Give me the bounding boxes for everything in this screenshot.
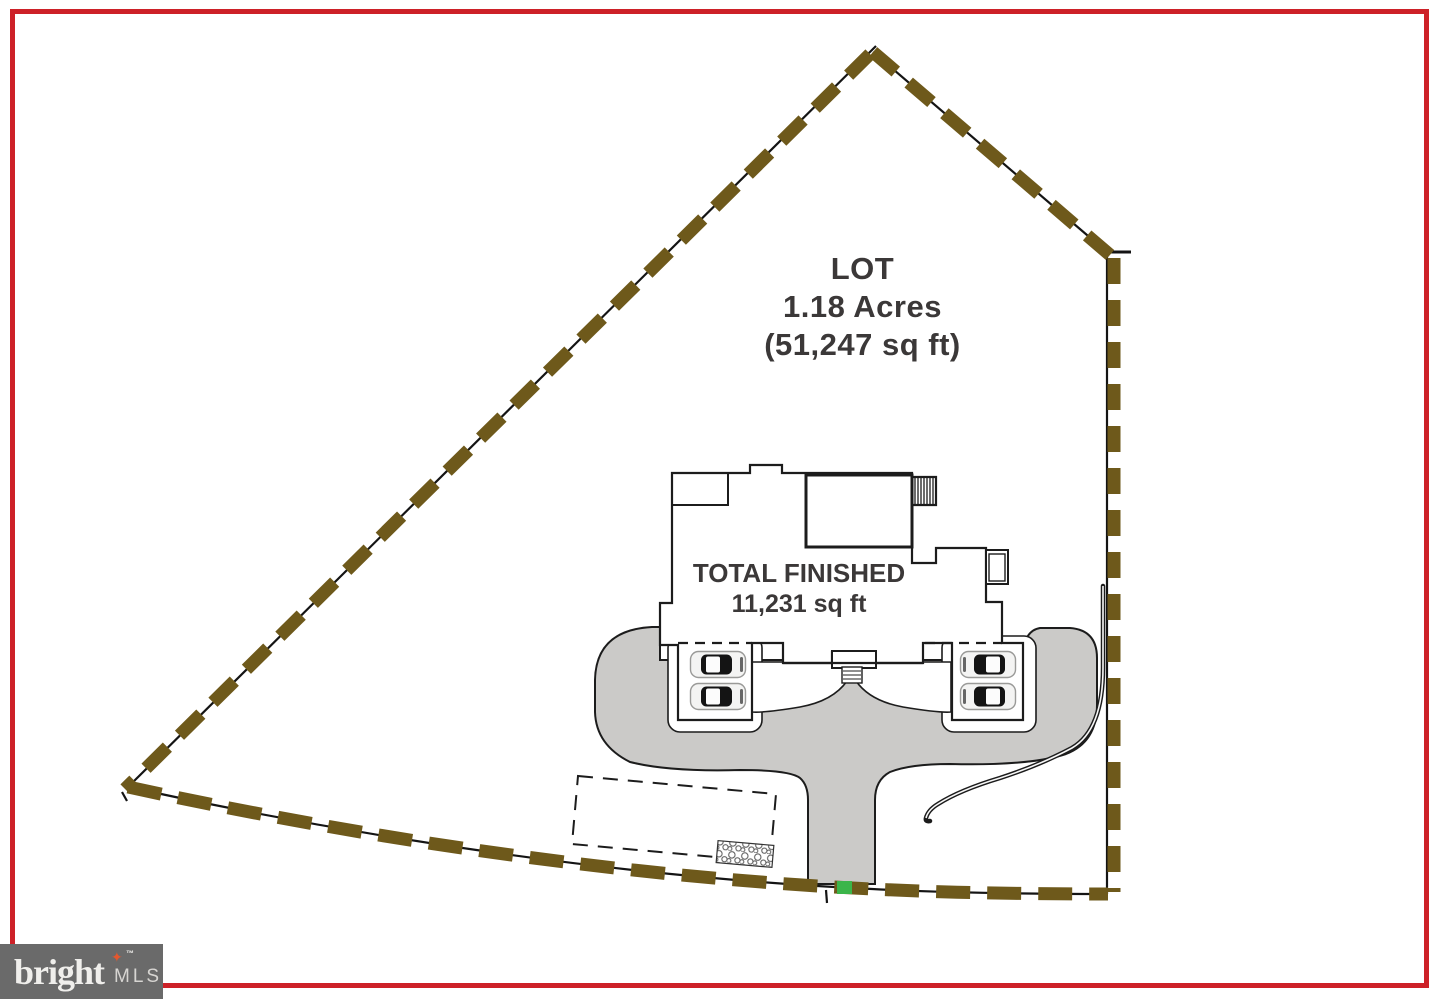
car-icon bbox=[691, 652, 746, 678]
lot-sqft: (51,247 sq ft) bbox=[690, 326, 1035, 364]
logo-text: bright bbox=[14, 952, 104, 992]
survey-marker bbox=[837, 881, 852, 894]
boundary-survey-lines bbox=[122, 46, 1131, 903]
brightmls-logo: bright ✦ ™ MLS bbox=[0, 944, 163, 999]
stone-strip bbox=[716, 841, 774, 868]
car-icon bbox=[961, 684, 1016, 710]
lot-title: LOT bbox=[690, 250, 1035, 288]
house-total-finished: TOTAL FINISHED bbox=[654, 558, 944, 589]
logo-trademark: ™ bbox=[126, 950, 133, 958]
car-icon bbox=[691, 684, 746, 710]
plat-map-image: LOT 1.18 Acres (51,247 sq ft) TOTAL FINI… bbox=[0, 0, 1440, 999]
car-icon bbox=[961, 652, 1016, 678]
house-label: TOTAL FINISHED 11,231 sq ft bbox=[654, 558, 944, 620]
lot-boundary-dashes bbox=[125, 52, 1114, 894]
house-sqft: 11,231 sq ft bbox=[654, 589, 944, 620]
site-plan-drawing bbox=[0, 0, 1440, 999]
stairs-hatch bbox=[915, 478, 933, 504]
brightmls-wordmark: bright ✦ ™ bbox=[14, 954, 104, 990]
lot-label: LOT 1.18 Acres (51,247 sq ft) bbox=[690, 250, 1035, 364]
logo-star-icon: ✦ bbox=[111, 951, 122, 965]
lot-acres: 1.18 Acres bbox=[690, 288, 1035, 326]
logo-mls-text: MLS bbox=[114, 966, 162, 988]
bay-window bbox=[986, 550, 1008, 584]
